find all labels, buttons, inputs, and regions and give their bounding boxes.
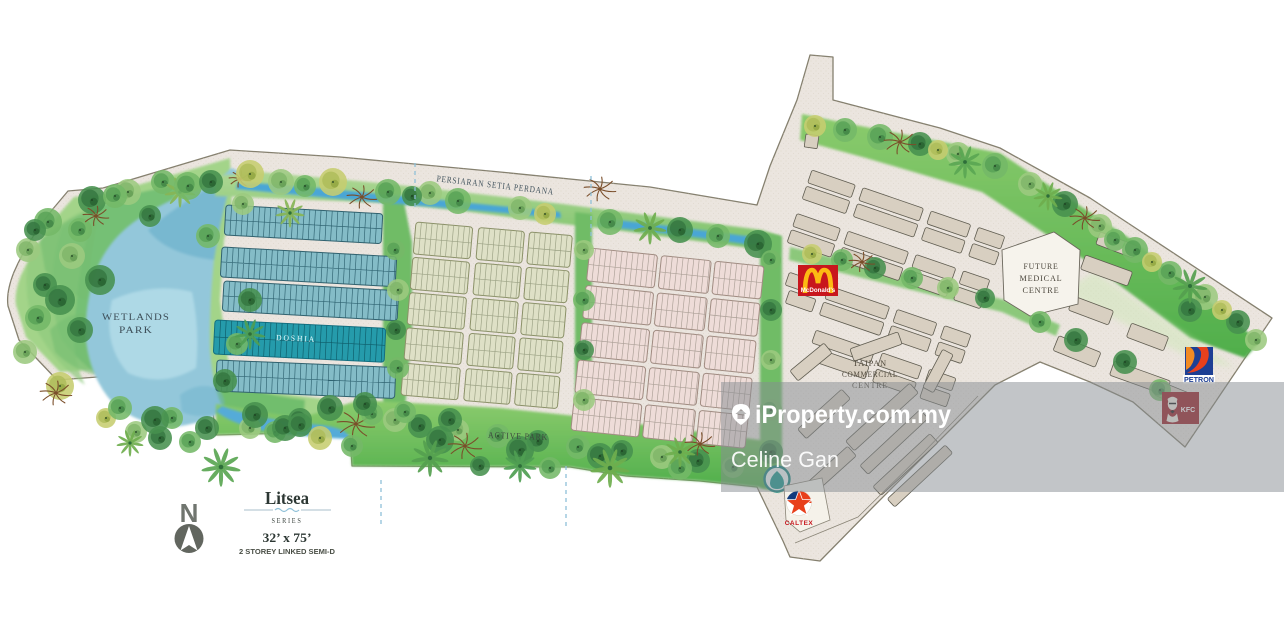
svg-text:CENTRE: CENTRE [1023, 286, 1060, 295]
svg-text:32’ x 75’: 32’ x 75’ [263, 530, 312, 545]
svg-text:FUTURE: FUTURE [1024, 262, 1059, 271]
svg-text:Litsea: Litsea [265, 488, 309, 508]
svg-text:ACTIVE PARK: ACTIVE PARK [488, 430, 548, 442]
svg-text:2 STOREY LINKED SEMI-D: 2 STOREY LINKED SEMI-D [239, 547, 336, 556]
svg-text:iProperty.com.my: iProperty.com.my [755, 401, 951, 429]
svg-text:DOSHIA: DOSHIA [276, 333, 316, 344]
svg-text:McDonald's: McDonald's [801, 287, 836, 294]
svg-text:PARK: PARK [119, 326, 153, 336]
svg-text:SERIES: SERIES [272, 516, 303, 525]
svg-text:TAIPAN: TAIPAN [853, 359, 887, 368]
svg-text:MEDICAL: MEDICAL [1020, 274, 1063, 283]
svg-text:CALTEX: CALTEX [785, 520, 814, 527]
svg-text:WETLANDS: WETLANDS [102, 313, 170, 323]
svg-text:Celine Gan: Celine Gan [731, 447, 839, 472]
svg-text:COMMERCIAL: COMMERCIAL [842, 370, 898, 379]
svg-text:N: N [180, 498, 199, 528]
